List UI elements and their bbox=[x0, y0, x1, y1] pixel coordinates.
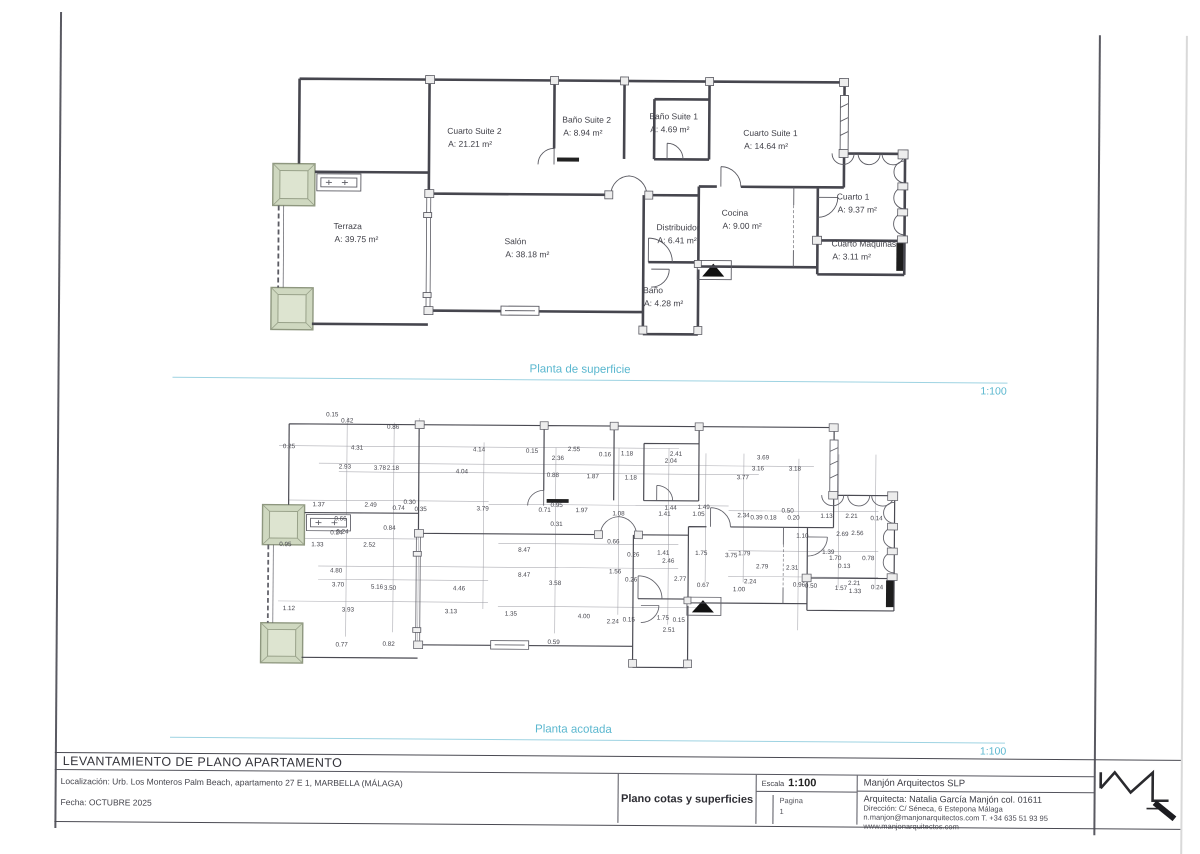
dimension-label: 2.51 bbox=[663, 627, 675, 634]
dimension-label: 0.96 bbox=[793, 582, 805, 589]
room-label: Cuarto 1A: 9.37 m² bbox=[837, 190, 877, 216]
plan-superficie-title: Planta de superficie bbox=[530, 363, 631, 376]
dimension-label: 1.87 bbox=[587, 473, 599, 480]
dimension-label: 0.59 bbox=[548, 639, 560, 646]
plan-superficie: TerrazaA: 39.75 m²Cuarto Suite 2A: 21.21… bbox=[268, 61, 915, 340]
dimension-label: 0.15 bbox=[526, 448, 538, 455]
room-label: DistribuidorA: 6.41 m² bbox=[656, 221, 699, 247]
dimension-label: 3.16 bbox=[752, 465, 764, 472]
scanned-floorplan-sheet: TerrazaA: 39.75 m²Cuarto Suite 2A: 21.21… bbox=[0, 0, 1200, 854]
plan-superficie-drawing bbox=[268, 61, 915, 340]
room-label: TerrazaA: 39.75 m² bbox=[333, 220, 378, 246]
dimension-label: 0.71 bbox=[538, 507, 550, 514]
dimension-label: 0.84 bbox=[383, 525, 395, 532]
dimension-label: 0.35 bbox=[414, 506, 426, 513]
page-label: Pagina bbox=[780, 795, 803, 806]
dimension-label: 0.13 bbox=[838, 563, 850, 570]
dimension-label: 3.58 bbox=[549, 580, 561, 587]
dimension-label: 8.47 bbox=[518, 572, 530, 579]
dimension-label: 0.66 bbox=[334, 515, 346, 522]
dimension-label: 2.77 bbox=[674, 576, 686, 583]
scale-cell: Escala 1:100 Pagina 1 bbox=[756, 775, 857, 825]
room-label: BañoA: 4.28 m² bbox=[643, 284, 683, 310]
dimension-label: 0.18 bbox=[764, 514, 776, 521]
dimension-label: 2.56 bbox=[851, 530, 863, 537]
dimension-label: 1.33 bbox=[849, 588, 861, 595]
dimension-label: 0.31 bbox=[550, 521, 562, 528]
dimension-label: 1.33 bbox=[311, 541, 323, 548]
dimension-label: 2.46 bbox=[662, 558, 674, 565]
dimension-label: 5.16 bbox=[371, 584, 383, 591]
room-label: Cuarto Suite 2A: 21.21 m² bbox=[447, 125, 502, 151]
paper-edge-line bbox=[1180, 36, 1188, 854]
manjon-arquitectos-logo bbox=[1094, 760, 1180, 827]
dimension-label: 1.41 bbox=[657, 550, 669, 557]
dimension-label: 3.69 bbox=[757, 454, 769, 461]
dimension-label: 1.75 bbox=[657, 615, 669, 622]
title-block: LEVANTAMIENTO DE PLANO APARTAMENTO Local… bbox=[54, 752, 1094, 829]
dimension-label: 4.00 bbox=[578, 613, 590, 620]
dimension-label: 1.37 bbox=[312, 501, 324, 508]
dimension-label: 2.69 bbox=[836, 531, 848, 538]
dimension-label: 2.49 bbox=[364, 502, 376, 509]
dimension-label: 4.80 bbox=[330, 567, 342, 574]
dimension-label: 0.50 bbox=[781, 508, 793, 515]
dimension-label: 0.30 bbox=[403, 499, 415, 506]
plan-superficie-scale: 1:100 bbox=[980, 385, 1006, 397]
dimension-label: 0.15 bbox=[326, 411, 338, 418]
dimension-label: 2.31 bbox=[786, 565, 798, 572]
dimension-label: 0.26 bbox=[627, 551, 639, 558]
dimension-label: 1.41 bbox=[658, 511, 670, 518]
page-value: 1 bbox=[779, 806, 802, 817]
dimension-label: 0.82 bbox=[382, 641, 394, 648]
dimension-label: 0.25 bbox=[283, 443, 295, 450]
dimension-label: 2.24 bbox=[607, 618, 619, 625]
dimension-label: 0.88 bbox=[547, 472, 559, 479]
dimension-label: 0.15 bbox=[673, 617, 685, 624]
dimension-label: 3.77 bbox=[737, 474, 749, 481]
scale-value: 1:100 bbox=[788, 777, 816, 789]
dimension-label: 2.24 bbox=[744, 578, 756, 585]
plan-superficie-rule bbox=[173, 377, 1008, 384]
dimension-label: 1.57 bbox=[835, 585, 847, 592]
dimension-label: 2.34 bbox=[737, 512, 749, 519]
firm-name: Manjón Arquitectos SLP bbox=[858, 776, 1095, 794]
dimension-label: 0.14 bbox=[870, 515, 882, 522]
dimension-label: 0.86 bbox=[387, 424, 399, 431]
room-label: CocinaA: 9.00 m² bbox=[722, 207, 762, 233]
logo-cell bbox=[1094, 759, 1180, 830]
dimension-label: 0.24 bbox=[330, 529, 342, 536]
room-label: Baño Suite 2A: 8.94 m² bbox=[562, 114, 611, 140]
dimension-label: 0.95 bbox=[550, 502, 562, 509]
dimension-label: 0.16 bbox=[599, 451, 611, 458]
dimension-label: 4.31 bbox=[351, 445, 363, 452]
dimension-label: 2.52 bbox=[363, 542, 375, 549]
plan-acotada: 0.150.420.860.254.312.933.782.184.044.14… bbox=[257, 407, 904, 673]
dimension-label: 3.75 bbox=[725, 552, 737, 559]
dimension-label: 2.04 bbox=[665, 458, 677, 465]
dimension-label: 1.97 bbox=[575, 507, 587, 514]
dimension-label: 1.00 bbox=[733, 586, 745, 593]
dimension-label: 4.04 bbox=[456, 468, 468, 475]
dimension-label: 3.78 bbox=[374, 465, 386, 472]
dimension-label: 1.79 bbox=[738, 550, 750, 557]
room-label: SalónA: 38.18 m² bbox=[504, 235, 549, 261]
dimension-label: 8.47 bbox=[518, 547, 530, 554]
dimension-label: 2.21 bbox=[848, 580, 860, 587]
dimension-label: 2.36 bbox=[552, 455, 564, 462]
dimension-label: 3.50 bbox=[384, 585, 396, 592]
title-block-body: Localización: Urb. Los Monteros Palm Bea… bbox=[54, 770, 1094, 826]
dimension-label: 1.75 bbox=[695, 550, 707, 557]
web-line: www.manjonarquitectos.com bbox=[857, 822, 1094, 833]
dimension-label: 2.18 bbox=[387, 465, 399, 472]
dimension-label: 0.78 bbox=[862, 555, 874, 562]
room-label: Baño Suite 1A: 4.69 m² bbox=[649, 110, 698, 136]
room-label: Cuarto MáquinasA: 3.11 m² bbox=[831, 237, 896, 263]
dimension-label: 1.12 bbox=[283, 605, 295, 612]
dimension-label: 2.79 bbox=[756, 563, 768, 570]
sheet-content: TerrazaA: 39.75 m²Cuarto Suite 2A: 21.21… bbox=[0, 0, 1200, 854]
dimension-label: 1.08 bbox=[612, 510, 624, 517]
dimension-label: 3.93 bbox=[342, 606, 354, 613]
dimension-label: 1.18 bbox=[621, 450, 633, 457]
dimension-label: 1.18 bbox=[625, 474, 637, 481]
frame-right-line bbox=[1093, 35, 1100, 835]
dimension-label: 1.05 bbox=[692, 511, 704, 518]
dimension-label: 4.46 bbox=[453, 585, 465, 592]
dimension-label: 2.93 bbox=[339, 463, 351, 470]
dimension-label: 0.77 bbox=[335, 641, 347, 648]
dimension-label: 2.55 bbox=[568, 446, 580, 453]
firm-cell: Manjón Arquitectos SLP Arquitecta: Natal… bbox=[857, 776, 1094, 827]
dimension-label: 1.35 bbox=[505, 611, 517, 618]
date-text: Fecha: OCTUBRE 2025 bbox=[61, 797, 152, 808]
room-label: Cuarto Suite 1A: 14.64 m² bbox=[743, 127, 798, 153]
dimension-label: 0.67 bbox=[697, 582, 709, 589]
document-title-cell: Plano cotas y superficies bbox=[617, 774, 756, 824]
dimension-label: 1.70 bbox=[829, 555, 841, 562]
dimension-label: 0.15 bbox=[623, 616, 635, 623]
dimension-label: 0.24 bbox=[871, 584, 883, 591]
location-cell: Localización: Urb. Los Monteros Palm Bea… bbox=[54, 770, 617, 823]
frame-left-line bbox=[54, 12, 61, 828]
dimension-label: 0.74 bbox=[392, 505, 404, 512]
plan-acotada-scale: 1:100 bbox=[980, 745, 1006, 757]
dimension-label: 3.70 bbox=[332, 581, 344, 588]
dimension-label: 0.95 bbox=[279, 541, 291, 548]
dimension-label: 2.21 bbox=[845, 513, 857, 520]
dimension-label: 3.13 bbox=[445, 608, 457, 615]
plan-acotada-rule bbox=[170, 737, 1005, 744]
dimension-label: 4.14 bbox=[473, 446, 485, 453]
plan-acotada-title: Planta acotada bbox=[535, 723, 612, 736]
dimension-label: 0.39 bbox=[750, 514, 762, 521]
dimension-label: 3.18 bbox=[789, 466, 801, 473]
scale-label: Escala bbox=[762, 778, 785, 787]
dimension-label: 1.10 bbox=[796, 533, 808, 540]
location-text: Localización: Urb. Los Monteros Palm Bea… bbox=[61, 776, 403, 788]
dimension-label: 1.56 bbox=[609, 568, 621, 575]
dimension-label: 0.26 bbox=[625, 576, 637, 583]
dimension-label: 0.20 bbox=[787, 515, 799, 522]
dimension-label: 3.79 bbox=[476, 505, 488, 512]
dimension-label: 0.50 bbox=[805, 583, 817, 590]
dimension-label: 0.66 bbox=[607, 538, 619, 545]
dimension-label: 0.42 bbox=[341, 417, 353, 424]
dimension-label: 1.13 bbox=[820, 513, 832, 520]
